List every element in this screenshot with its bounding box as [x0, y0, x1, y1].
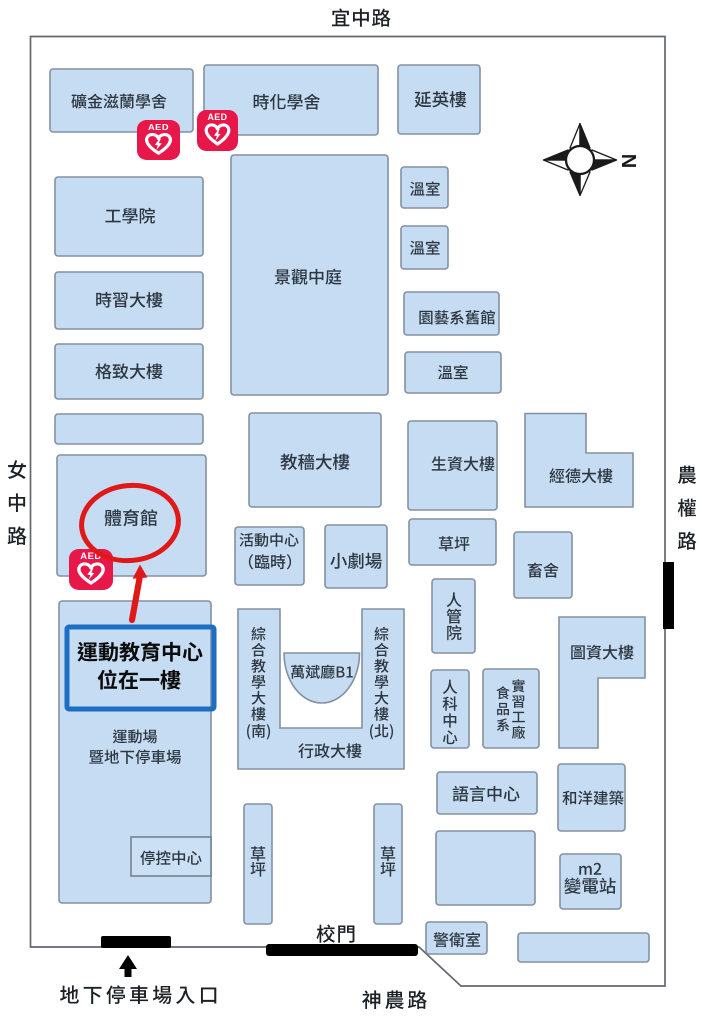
svg-text:AED: AED — [148, 122, 169, 132]
svg-text:AED: AED — [207, 112, 227, 122]
svg-text:N: N — [617, 154, 639, 168]
